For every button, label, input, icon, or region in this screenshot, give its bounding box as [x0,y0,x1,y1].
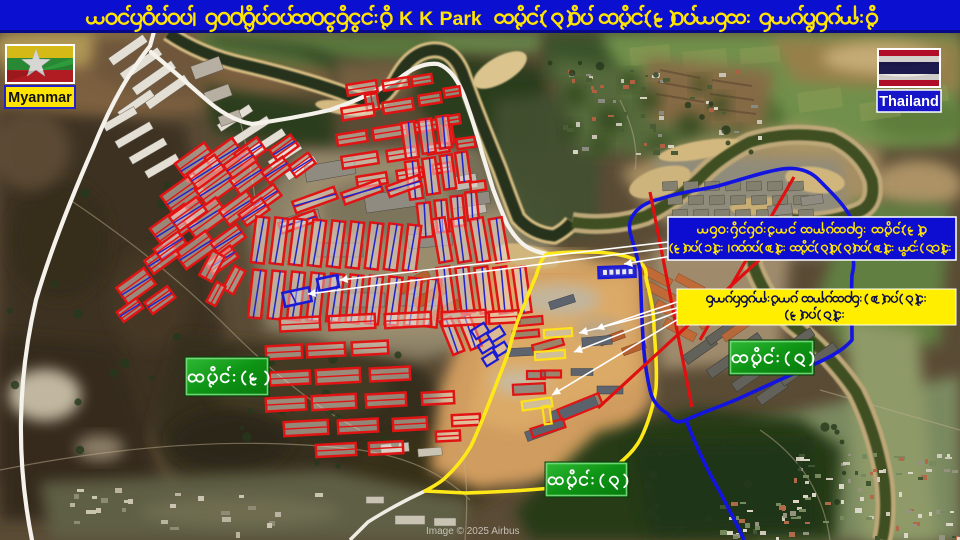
svg-text:Image © 2025 Airbus: Image © 2025 Airbus [426,526,520,537]
svg-text:K: K [419,8,433,30]
svg-text:Park: Park [439,8,481,30]
svg-text:K: K [399,8,413,30]
svg-text:Myanmar: Myanmar [8,90,72,106]
svg-text:Thailand: Thailand [879,94,939,110]
